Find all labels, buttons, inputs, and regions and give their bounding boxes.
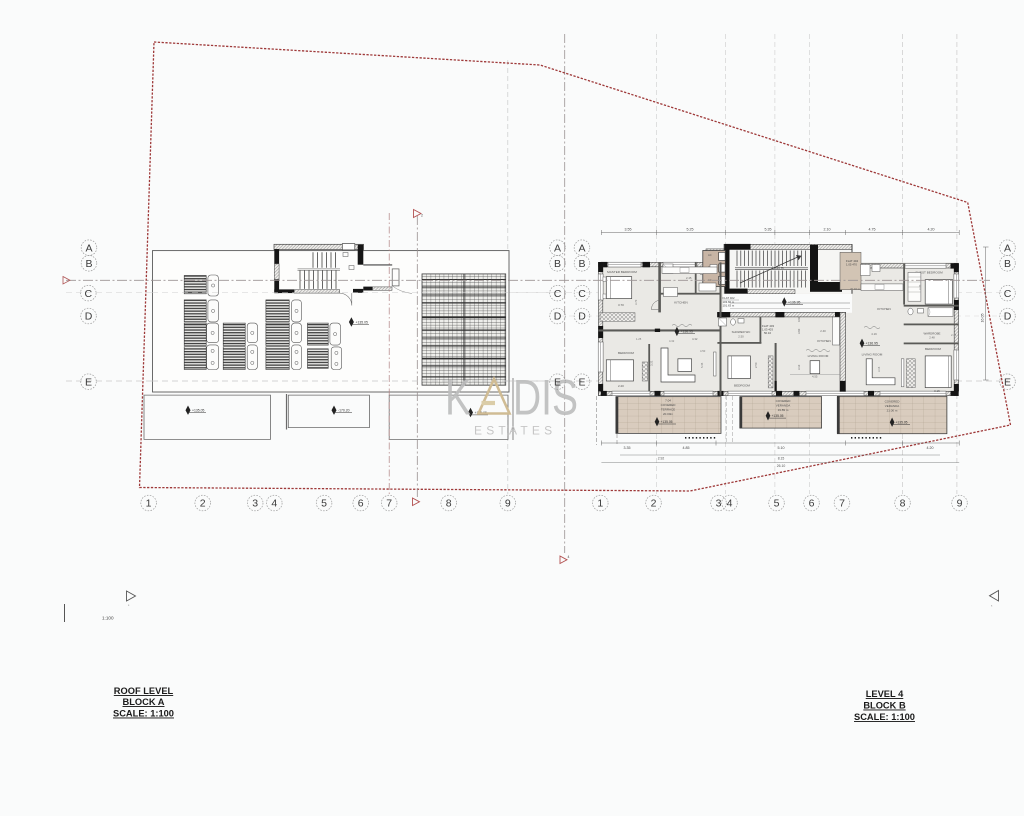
svg-text:DIS: DIS (513, 370, 578, 426)
svg-text:A: A (578, 242, 585, 254)
svg-text:+135.05: +135.05 (661, 420, 673, 424)
svg-text:K: K (445, 370, 471, 426)
svg-text:16.30 m: 16.30 m (772, 266, 784, 270)
svg-text:4.75: 4.75 (869, 228, 876, 232)
svg-text:7.04: 7.04 (665, 399, 671, 403)
svg-text:8: 8 (900, 498, 906, 510)
svg-text:4: 4 (271, 498, 277, 510)
svg-text:1.25: 1.25 (636, 337, 642, 341)
svg-text:0.90: 0.90 (797, 316, 801, 322)
svg-text:2.20: 2.20 (618, 384, 624, 388)
svg-text:2.48: 2.48 (951, 333, 957, 337)
svg-text:20.92 m: 20.92 m (850, 287, 861, 291)
svg-text:C: C (1004, 288, 1012, 300)
svg-text:26.10: 26.10 (777, 464, 786, 468)
svg-text:E: E (554, 376, 561, 388)
svg-text:4.32: 4.32 (692, 337, 698, 341)
svg-text:50.10: 50.10 (764, 331, 771, 335)
svg-text:-170.20: -170.20 (338, 409, 350, 413)
svg-text:3: 3 (716, 498, 722, 510)
svg-text:3.15: 3.15 (934, 389, 940, 393)
svg-text:KITCHEN: KITCHEN (817, 339, 831, 343)
svg-text:SCALE: 1:100: SCALE: 1:100 (113, 709, 174, 719)
svg-text:+135.05: +135.05 (192, 409, 204, 413)
svg-text:COVERED: COVERED (661, 403, 677, 407)
svg-text:19.89 m: 19.89 m (778, 408, 789, 412)
svg-text:BLOCK B: BLOCK B (863, 701, 906, 711)
svg-text:4.19: 4.19 (871, 332, 877, 336)
svg-text:4.20: 4.20 (927, 446, 934, 450)
svg-text:1:100: 1:100 (102, 616, 114, 621)
svg-text:E: E (1004, 376, 1011, 388)
svg-text:4.55: 4.55 (812, 375, 818, 379)
svg-text:ROOF LEVEL: ROOF LEVEL (114, 686, 174, 696)
svg-text:5.25: 5.25 (687, 228, 694, 232)
svg-text:7: 7 (386, 498, 392, 510)
svg-text:2: 2 (421, 214, 423, 218)
svg-text:2.92: 2.92 (658, 457, 665, 461)
svg-text:4.20: 4.20 (928, 228, 935, 232)
svg-text:KITCHEN: KITCHEN (877, 307, 891, 311)
svg-text:E: E (578, 376, 585, 388)
svg-text:2.48: 2.48 (929, 336, 935, 340)
svg-text:BEDROOM: BEDROOM (925, 347, 941, 351)
svg-text:8.15: 8.15 (778, 457, 785, 461)
svg-text:2: 2 (651, 498, 657, 510)
svg-text:VERANDA: VERANDA (776, 404, 791, 408)
svg-text:4: 4 (727, 498, 733, 510)
svg-text:LIVING ROOM: LIVING ROOM (862, 353, 883, 357)
svg-text:2.40: 2.40 (820, 329, 826, 333)
svg-text:5.35: 5.35 (765, 228, 772, 232)
svg-text:4: 4 (568, 555, 570, 559)
svg-text:2.10: 2.10 (824, 228, 831, 232)
svg-text:SHOWER WC: SHOWER WC (732, 330, 751, 334)
svg-text:3.70: 3.70 (918, 284, 922, 290)
svg-text:9: 9 (957, 498, 963, 510)
svg-text:20.00m: 20.00m (663, 412, 674, 416)
svg-text:3.10: 3.10 (797, 364, 801, 370)
svg-text:BEDROOM: BEDROOM (618, 351, 634, 355)
svg-text:4.32: 4.32 (669, 339, 675, 343)
svg-text:KITCHEN: KITCHEN (674, 301, 688, 305)
svg-text:101.63 m: 101.63 m (723, 304, 735, 308)
svg-text:6: 6 (809, 498, 815, 510)
svg-text:C: C (85, 288, 93, 300)
svg-text:COVERED: COVERED (776, 399, 792, 403)
svg-text:B: B (85, 258, 92, 270)
svg-text:D: D (578, 311, 586, 323)
svg-text:3.15: 3.15 (877, 366, 881, 372)
svg-text:TERRACE: TERRACE (661, 408, 675, 412)
svg-text:+135.05: +135.05 (772, 414, 784, 418)
svg-text:BEDROOM: BEDROOM (734, 384, 750, 388)
svg-text:3.60: 3.60 (797, 328, 801, 334)
svg-text:1: 1 (597, 498, 603, 510)
svg-text:D: D (85, 311, 93, 323)
svg-text:2.50: 2.50 (754, 362, 758, 368)
svg-text:+136.95: +136.95 (788, 300, 800, 304)
svg-text:SCALE: 1:100: SCALE: 1:100 (854, 712, 915, 722)
svg-text:MASTER BEDROOM: MASTER BEDROOM (607, 270, 637, 274)
svg-text:+135.05: +135.05 (356, 320, 368, 324)
svg-text:BLOCK A: BLOCK A (122, 697, 164, 707)
svg-text:D: D (1004, 311, 1012, 323)
svg-text:16.05: 16.05 (981, 314, 985, 323)
svg-text:3.70: 3.70 (618, 303, 624, 307)
svg-text:5: 5 (321, 498, 327, 510)
svg-text:21.00 m: 21.00 m (887, 409, 898, 413)
svg-text:B: B (578, 258, 585, 270)
svg-text:1: 1 (146, 498, 152, 510)
svg-text:+136.95: +136.95 (681, 330, 693, 334)
svg-text:D: D (554, 311, 562, 323)
svg-text:3: 3 (252, 498, 258, 510)
svg-text:B: B (1004, 258, 1011, 270)
svg-text:VERANDA: VERANDA (885, 404, 900, 408)
svg-text:4.85: 4.85 (683, 446, 690, 450)
svg-text:3.70: 3.70 (634, 299, 638, 305)
svg-text:3.55: 3.55 (625, 228, 632, 232)
svg-text:E: E (85, 376, 92, 388)
svg-text:1.05 470: 1.05 470 (846, 263, 857, 267)
svg-text:4.50: 4.50 (700, 349, 706, 353)
svg-text:3.21: 3.21 (650, 360, 654, 366)
svg-text:6: 6 (358, 498, 364, 510)
svg-text:7: 7 (839, 498, 845, 510)
svg-text:9: 9 (505, 498, 511, 510)
svg-text:COVERED: COVERED (885, 400, 901, 404)
svg-text:LIVING ROOM: LIVING ROOM (808, 354, 829, 358)
svg-text:A: A (554, 242, 561, 254)
svg-text:3.35: 3.35 (624, 446, 631, 450)
svg-text:+135.05: +135.05 (896, 421, 908, 425)
svg-text:LEVEL 4: LEVEL 4 (866, 689, 904, 699)
svg-text:C: C (554, 288, 562, 300)
svg-text:AC: AC (708, 253, 712, 257)
svg-text:+136.95: +136.95 (866, 342, 878, 346)
svg-text:5: 5 (774, 498, 780, 510)
svg-text:A: A (1004, 242, 1011, 254)
svg-text:2.50: 2.50 (738, 335, 744, 339)
svg-text:ESTATES: ESTATES (474, 424, 556, 438)
svg-text:5.45: 5.45 (700, 362, 704, 368)
svg-text:5.10: 5.10 (778, 446, 785, 450)
svg-text:B: B (554, 258, 561, 270)
svg-text:8: 8 (446, 498, 452, 510)
svg-text:A: A (85, 242, 92, 254)
svg-text:2: 2 (200, 498, 206, 510)
svg-text:2.45: 2.45 (686, 276, 692, 280)
svg-text:C: C (578, 288, 586, 300)
